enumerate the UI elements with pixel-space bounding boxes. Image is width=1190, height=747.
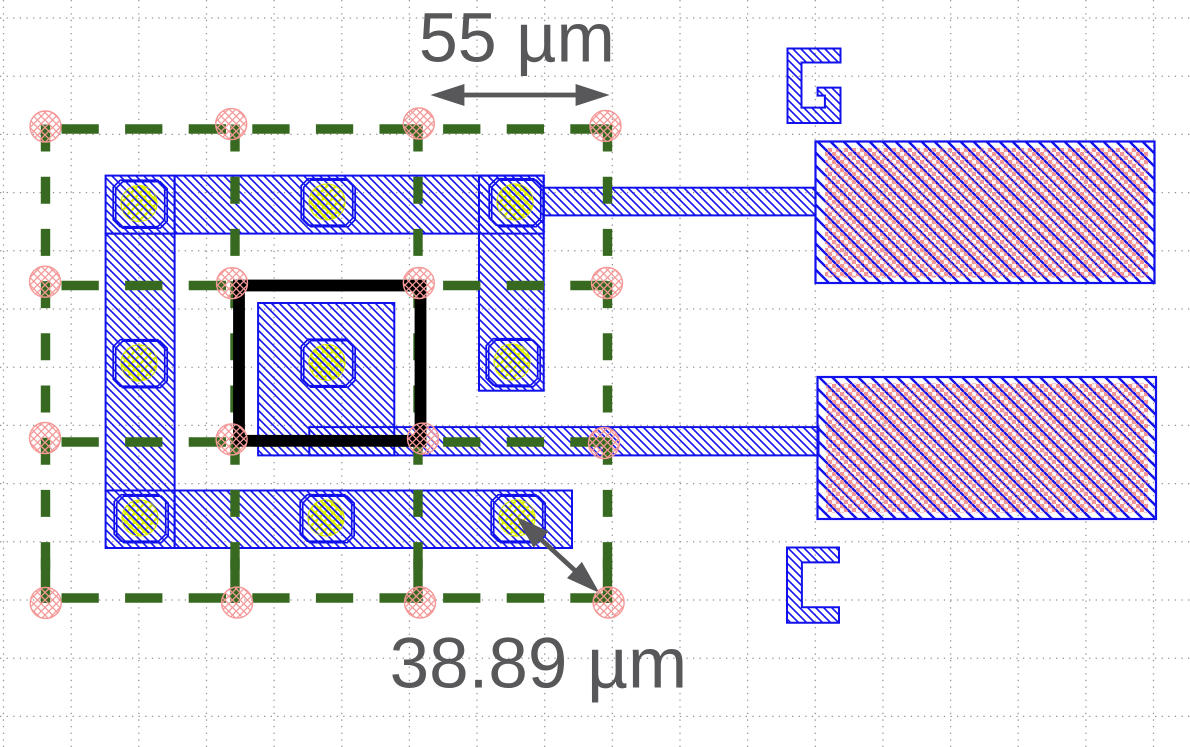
svg-text:55 µm: 55 µm [419,0,615,77]
svg-text:38.89 µm: 38.89 µm [390,625,687,704]
